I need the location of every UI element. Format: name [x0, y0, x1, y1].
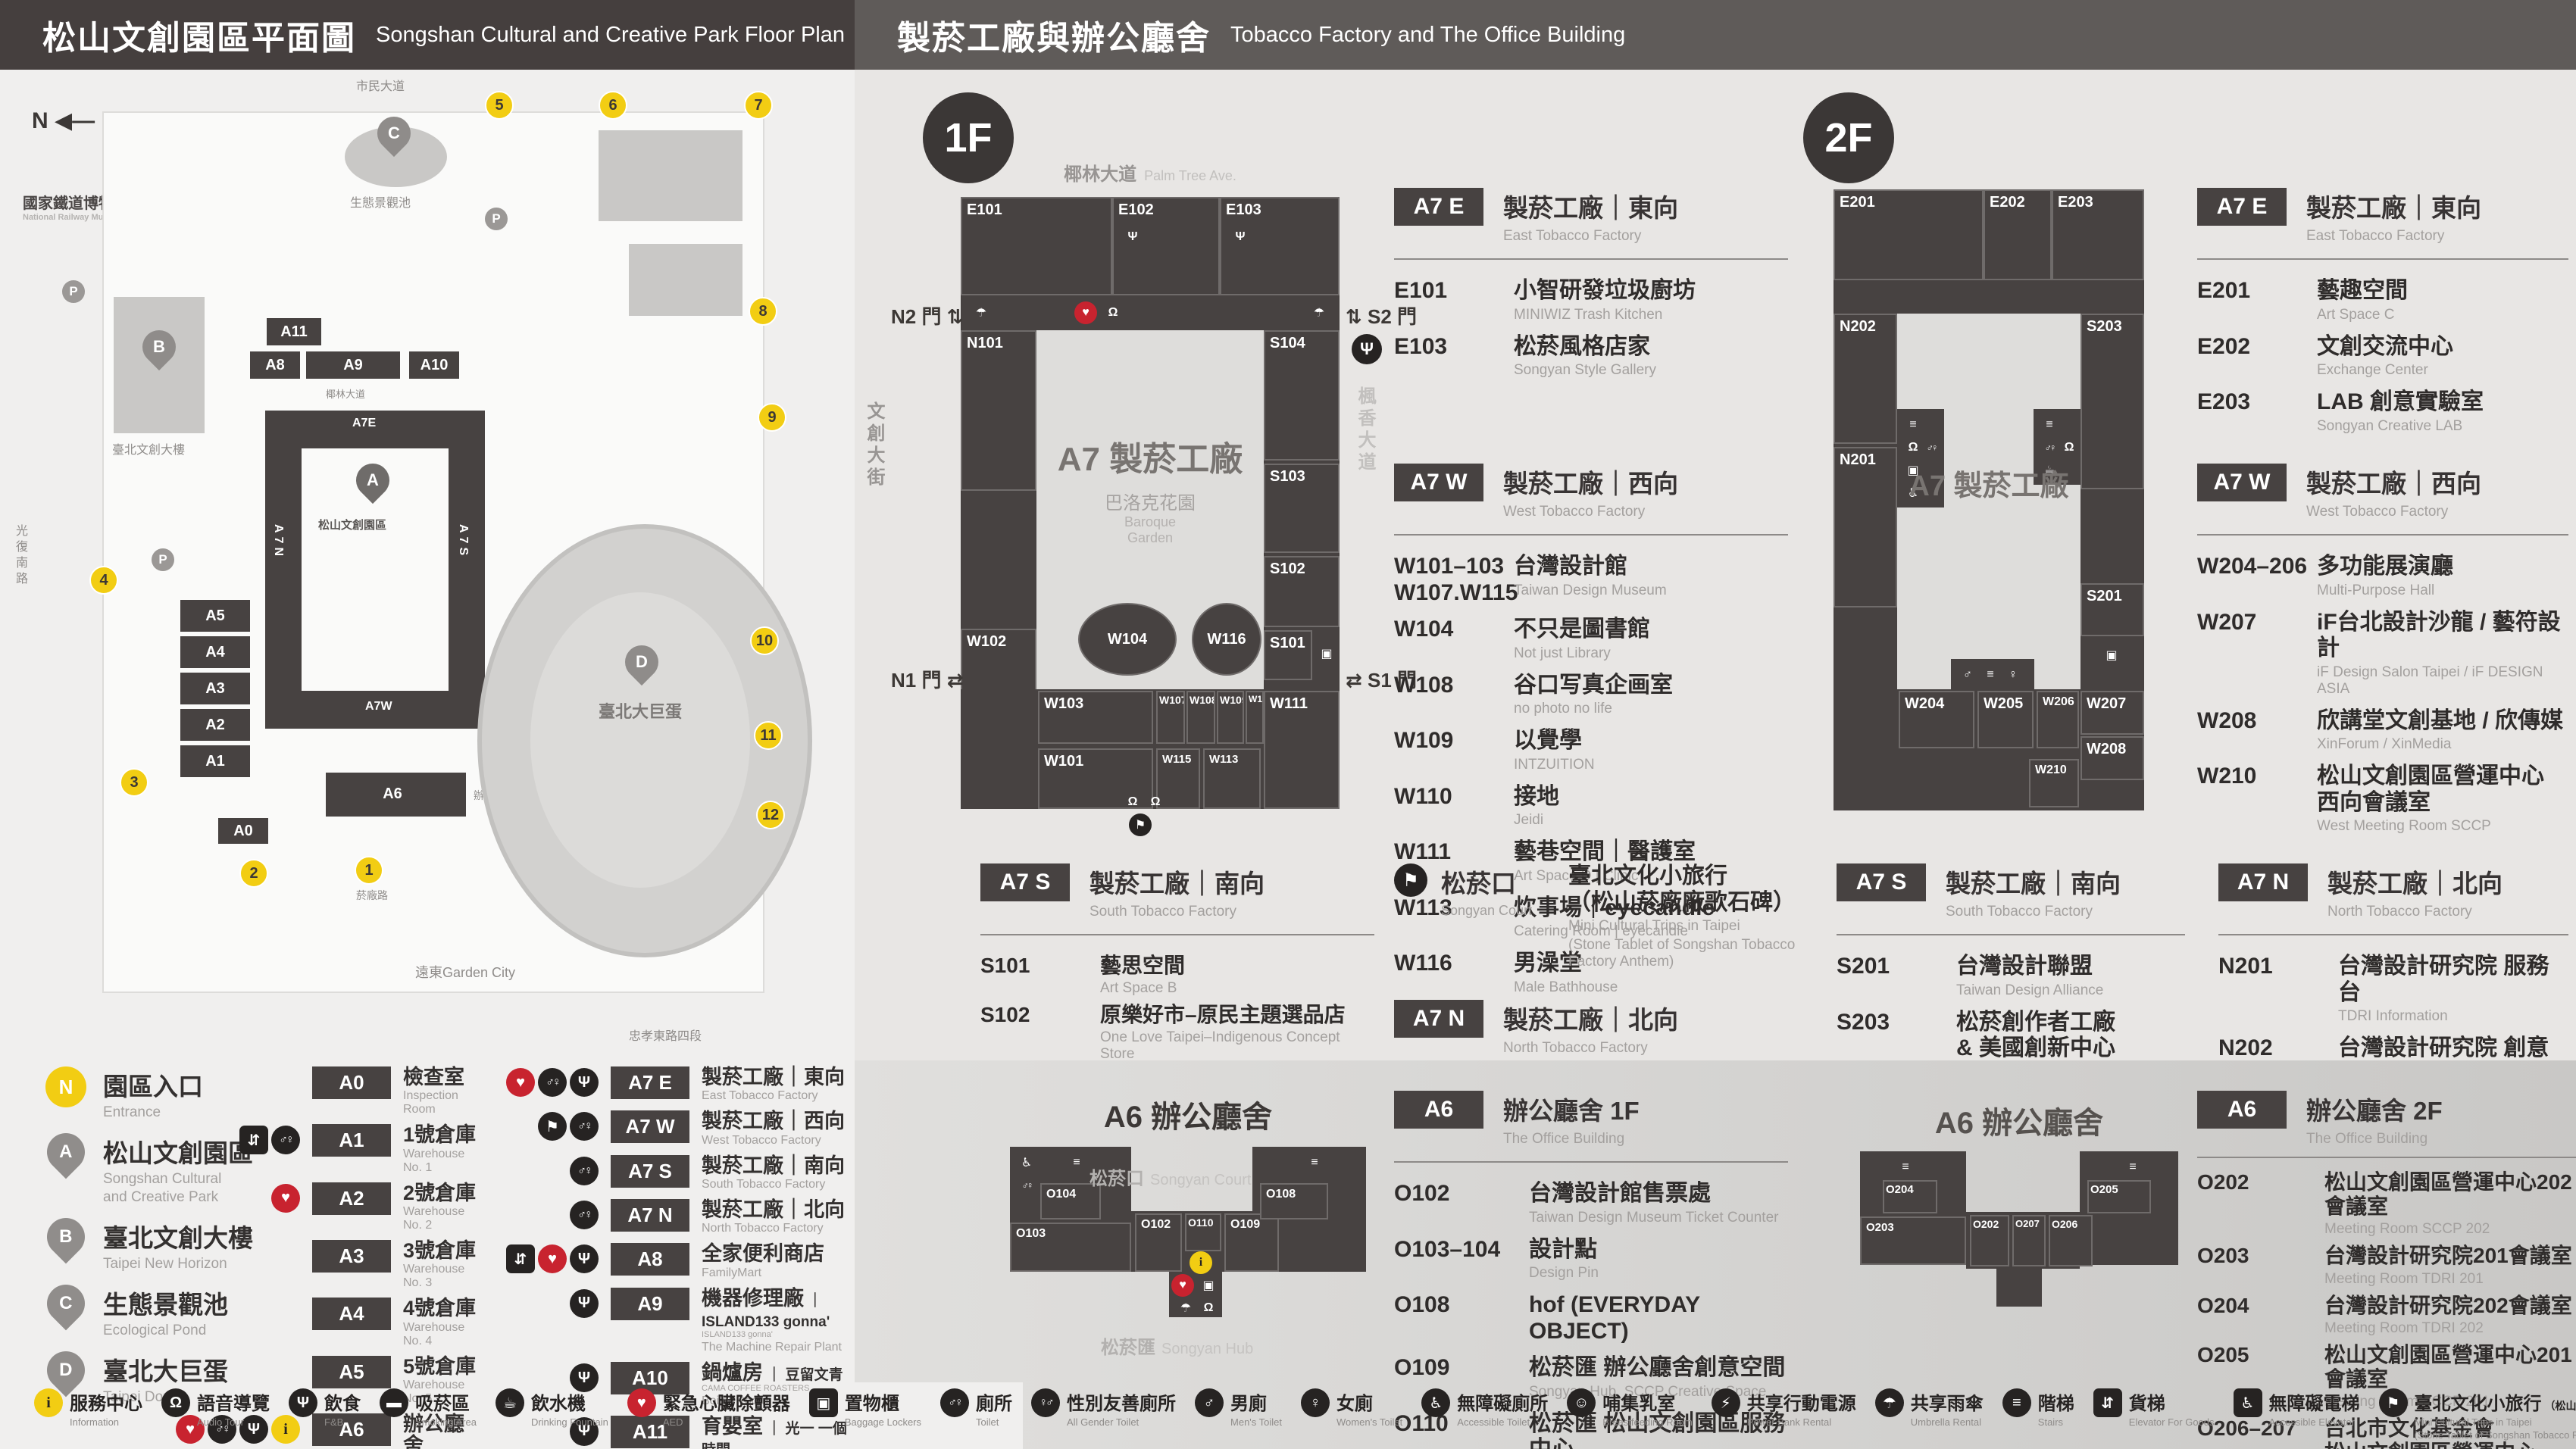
facility-item: 語音導覽 Audio Tour: [161, 1388, 270, 1428]
maple-ave-label: 楓香大道: [1352, 386, 1378, 474]
stairs-icon: [2002, 1388, 2031, 1417]
building-badge: A8: [611, 1243, 689, 1276]
map-a0: A0: [218, 818, 268, 844]
north-corridor: [961, 295, 1340, 330]
plan-2f: E201 E202 E203 N202 N201 S203 S201: [1811, 159, 2167, 833]
toilet-icon: [1920, 436, 1943, 459]
section-badge: A7 N: [1394, 1000, 1483, 1038]
building-badge: A7 N: [611, 1199, 689, 1232]
map-a8: A8: [250, 351, 300, 379]
room: N202: [1834, 314, 1897, 444]
section-badge: A7 N: [2218, 863, 2308, 901]
info-icon: [1190, 1251, 1212, 1274]
section-badge: A7 S: [1837, 863, 1926, 901]
dome-label: 臺北大巨蛋: [599, 698, 682, 723]
fnb-icon: [570, 1068, 599, 1097]
songyan-court-label: 松菸口Songyan Court: [1089, 1163, 1251, 1190]
gate-8: 8: [749, 297, 777, 326]
directory-item: W204–206 多功能展演廳Multi-Purpose Hall: [2197, 554, 2568, 599]
gate-6: 6: [599, 91, 627, 120]
legend-building-item: A7 W 製菸工廠｜西向 West Tobacco Factory: [485, 1110, 849, 1147]
accessible-elevator-icon: [2234, 1388, 2262, 1417]
audio-tour-icon: [1197, 1297, 1220, 1319]
toilet-icon: [570, 1112, 599, 1141]
right-title-en: Tobacco Factory and The Office Building: [1230, 23, 1625, 48]
room: O207: [2012, 1215, 2046, 1266]
room: S203: [2080, 314, 2144, 489]
room: S201: [2080, 583, 2144, 636]
directory-item: O204 台灣設計研究院202會議室Meeting Room TDRI 202: [2197, 1294, 2576, 1337]
nursing-icon: [1567, 1388, 1596, 1417]
section-songyan-court: 松菸口Songyan Court 臺北文化小旅行 （松山菸廠廠歌石碑） Mini…: [1394, 863, 1818, 970]
street-left-label: 光復南路: [11, 524, 29, 588]
directory-item: S101 藝思空間Art Space B: [980, 954, 1374, 997]
directory-item: W210 松山文創園區營運中心西向會議室West Meeting Room SC…: [2197, 764, 2568, 835]
directory-item: S102 原樂好市–原民主題選品店One Love Taipei–Indigen…: [980, 1003, 1374, 1063]
section-badge: A7 E: [2197, 188, 2287, 226]
locker-icon: [809, 1388, 838, 1417]
garden-city-label: 遠東Garden City: [415, 962, 515, 982]
left-title-en: Songshan Cultural and Creative Park Floo…: [376, 23, 845, 48]
men-icon: [1195, 1388, 1224, 1417]
audio-tour-icon: [2058, 436, 2080, 459]
room: O205: [2087, 1180, 2151, 1213]
umbrella-icon: [1875, 1388, 1904, 1417]
map-a11: A11: [267, 318, 321, 345]
toilet-icon: [271, 1126, 300, 1154]
a6-plan-title: A6 辦公廳舍: [1849, 1098, 2190, 1142]
stairs-icon: [1902, 414, 1924, 436]
place-pin-icon: B: [45, 1218, 86, 1262]
directory-item: O102 台灣設計館售票處Taiwan Design Museum Ticket…: [1394, 1181, 1788, 1226]
room: W210: [2029, 759, 2079, 807]
facility-item: 飲水機 Drinking Fountain: [496, 1388, 608, 1428]
locker-icon: [1197, 1274, 1220, 1297]
room: O203: [1860, 1216, 1966, 1265]
room: O109: [1224, 1213, 1279, 1272]
aed-icon: [1074, 301, 1097, 324]
locker-icon: [1315, 642, 1338, 665]
legend-building-item: A8 全家便利商店 FamilyMart: [485, 1243, 849, 1279]
room: W116: [1192, 603, 1261, 676]
facility-item: 廁所 Toilet: [940, 1388, 1012, 1428]
accessible-icon: [1421, 1388, 1450, 1417]
parking-icon: P: [62, 280, 85, 303]
facility-item: 緊急心臟除顫器 AED: [627, 1388, 790, 1428]
fountain-icon: [496, 1388, 524, 1417]
building-badge: A3: [312, 1240, 391, 1273]
map-legend: N 園區入口Entrance A 松山文創園區Songshan Cultural…: [0, 1053, 855, 1382]
building-badge: A4: [312, 1298, 391, 1330]
fnb-icon: [1121, 226, 1144, 248]
a7-center-label: A7 製菸工廠: [1897, 462, 2080, 504]
audio-tour-icon: [1102, 301, 1124, 324]
place-pin-icon: A: [45, 1133, 86, 1177]
fnb-icon: [570, 1289, 599, 1318]
place-pin-icon: C: [45, 1285, 86, 1329]
facility-item: 吸菸區 Smoking Area: [380, 1388, 477, 1428]
stairs-icon: [2038, 414, 2061, 436]
section-badge: A7 S: [980, 863, 1070, 901]
directory-item: O103–104 設計點Design Pin: [1394, 1237, 1788, 1282]
room: W206: [2037, 691, 2079, 748]
entrance-marker-icon: N: [45, 1066, 86, 1107]
umbrella-icon: [1174, 1297, 1197, 1319]
legend-building-item: A4 4號倉庫Warehouse No. 4: [227, 1298, 477, 1348]
room: O110: [1185, 1213, 1221, 1251]
plan-a6-1f: A6 辦公廳舍 O104 O103 O102 O110 O109 O108 松菸…: [999, 1079, 1377, 1382]
smoking-icon: [380, 1388, 408, 1417]
stairs-icon: [1303, 1151, 1326, 1174]
room: W110: [1246, 691, 1264, 744]
mens-toilet-icon: [1956, 664, 1979, 686]
legend-building-item: A9 機器修理廠ISLAND133 gonna' ISLAND133 gonna…: [485, 1288, 849, 1355]
directory-item: O202 松山文創園區營運中心202會議室Meeting Room SCCP 2…: [2197, 1170, 2576, 1238]
room: W108: [1186, 691, 1215, 744]
directory-item: O108 hof (EVERYDAY OBJECT): [1394, 1292, 1788, 1344]
section-a7e-1f: A7 E 製菸工廠｜東向East Tobacco Factory E101 小智…: [1394, 188, 1788, 389]
room: E202: [1984, 189, 2052, 280]
facility-item: 階梯 Stairs: [2002, 1388, 2074, 1428]
street-top-label: 市民大道: [356, 76, 405, 94]
facility-item: 貨梯 Elevator For Goods: [2093, 1388, 2215, 1428]
gate-12: 12: [756, 801, 785, 829]
room: W207: [2080, 691, 2144, 735]
legend-building-item: A1 1號倉庫Warehouse No. 1: [227, 1124, 477, 1174]
room: E201: [1834, 189, 1984, 280]
room: W109: [1217, 691, 1244, 744]
plan-a6-2f: A6 辦公廳舍 O204 O203 O202 O207 O206 O205: [1849, 1091, 2190, 1363]
aed-icon: [538, 1244, 567, 1273]
legend-building-item: A7 E 製菸工廠｜東向 East Tobacco Factory: [485, 1066, 849, 1103]
yanchang-rd-label: 菸廠路: [356, 888, 388, 903]
section-a7e-2f: A7 E 製菸工廠｜東向East Tobacco Factory E201 藝趣…: [2197, 188, 2568, 445]
room: S104: [1264, 330, 1340, 461]
palm-ave-street: 椰林大道Palm Tree Ave.: [930, 159, 1370, 186]
gate-10: 10: [750, 626, 779, 655]
floor-plan-page: 松山文創園區平面圖 Songshan Cultural and Creative…: [0, 0, 2576, 1449]
room: W205: [1977, 691, 2034, 748]
room: N101: [961, 330, 1036, 491]
facility-item: 飲食 F&B: [289, 1388, 361, 1428]
directory-item: E103 松菸風格店家Songyan Style Gallery: [1394, 334, 1788, 379]
stairs-icon: [1979, 664, 2002, 686]
map-a5: A5: [180, 600, 250, 632]
room: O202: [1970, 1215, 2009, 1266]
parking-icon: P: [152, 548, 174, 571]
facility-item: 置物櫃 Baggage Lockers: [809, 1388, 921, 1428]
room: W113: [1203, 748, 1261, 809]
pond-label: 生態景觀池: [350, 192, 411, 211]
directory-item: E101 小智研發垃圾廚坊MINIWIZ Trash Kitchen: [1394, 278, 1788, 323]
map-a3: A3: [180, 673, 250, 704]
directory-item: W101–103W107.W115 台灣設計館Taiwan Design Mus…: [1394, 554, 1788, 606]
building-badge: A5: [312, 1356, 391, 1388]
umbrella-icon: [1308, 301, 1330, 324]
plan-1f: 椰林大道Palm Tree Ave. E101 E102 E103 N2 門 ⇅…: [930, 159, 1370, 833]
room: O204: [1883, 1180, 1937, 1213]
section-a7w-2f: A7 W 製菸工廠｜西向West Tobacco Factory W204–20…: [2197, 464, 2568, 845]
building-shape: [629, 244, 742, 316]
left-title-zh: 松山文創園區平面圖: [42, 11, 356, 59]
aed-icon: [1171, 1274, 1194, 1297]
directory-item: E203 LAB 創意實驗室Songyan Creative LAB: [2197, 389, 2568, 435]
directory-item: E201 藝趣空間Art Space C: [2197, 278, 2568, 323]
directory-item: W104 不只是圖書館Not just Library: [1394, 617, 1788, 662]
gate-3: 3: [120, 768, 148, 797]
room: N201: [1834, 447, 1897, 607]
toilet-icon: [570, 1201, 599, 1229]
room: W204: [1899, 691, 1974, 748]
room: S101: [1264, 630, 1312, 680]
gate-4: 4: [89, 566, 118, 595]
map-a7n: A7N: [271, 524, 285, 560]
map-a1: A1: [180, 745, 250, 777]
facility-item: 無障礙電梯 Accessible Elevator: [2234, 1388, 2360, 1428]
facility-item: 共享行動電源 Power Bank Rental: [1712, 1388, 1856, 1428]
building-badge: A7 E: [611, 1066, 689, 1099]
room: W107: [1156, 691, 1185, 744]
toilet-icon: [940, 1388, 969, 1417]
directory-item: W110 接地Jeidi: [1394, 784, 1788, 829]
fnb-icon: [289, 1388, 317, 1417]
stairs-icon: [2121, 1156, 2144, 1179]
facility-item: 哺集乳室 Breastfeeding Room: [1567, 1388, 1693, 1428]
info-icon: [34, 1388, 63, 1417]
legend-building-item: A3 3號倉庫Warehouse No. 3: [227, 1240, 477, 1290]
legend-building-item: A2 2號倉庫Warehouse No. 2: [227, 1182, 477, 1232]
legend-building-item: A7 S 製菸工廠｜南向 South Tobacco Factory: [485, 1155, 849, 1191]
audio-tour-icon: [1121, 791, 1144, 814]
park-name-label: 松山文創園區: [318, 517, 386, 532]
toilet-icon: [570, 1157, 599, 1185]
building-badge: A7 W: [611, 1110, 689, 1143]
palm-ave-label: 椰林大道: [326, 386, 365, 401]
powerbank-icon: [1712, 1388, 1740, 1417]
songyan-hub-label: 松菸匯Songyan Hub: [1101, 1332, 1253, 1359]
north-corridor: [1834, 280, 2144, 314]
audio-icon: [161, 1388, 190, 1417]
building-badge: A2: [312, 1182, 391, 1215]
mini-trips-icon: [1129, 814, 1152, 836]
stairs-icon: [1065, 1151, 1088, 1174]
aed-icon: [506, 1068, 535, 1097]
room: O102: [1135, 1213, 1182, 1272]
room: W103: [1038, 691, 1153, 744]
facility-item: 服務中心 Information: [34, 1388, 142, 1428]
directory-item: O203 台灣設計研究院201會議室Meeting Room TDRI 201: [2197, 1244, 2576, 1287]
womens-toilet-icon: [2002, 664, 2024, 686]
building-badge: A7 S: [611, 1155, 689, 1188]
goods-elevator-icon: [239, 1126, 268, 1154]
facility-item: 臺北文化小旅行（松山菸廠廠歌石碑） Mini Cultural Trips in…: [2379, 1388, 2576, 1441]
aed-icon: [271, 1184, 300, 1213]
a6-stem: [1996, 1269, 2042, 1307]
women-icon: [1301, 1388, 1330, 1417]
facility-legend-strip: 服務中心 Information 語音導覽 Audio Tour 飲食 F&B …: [34, 1388, 2557, 1441]
map-a9: A9: [306, 351, 400, 379]
audio-tour-icon: [1144, 791, 1167, 814]
map-a7s: A7S: [456, 524, 470, 559]
room: S102: [1264, 556, 1340, 627]
legend-building-item: A0 檢查室Inspection Room: [227, 1066, 477, 1116]
a6-plan-title: A6 辦公廳舍: [999, 1092, 1377, 1136]
map-a6: A6: [370, 780, 415, 807]
gate-n1-label: N1 門 ⇄: [891, 665, 963, 693]
map-a2: A2: [180, 709, 250, 741]
tobacco-factory-panel: 1F 椰林大道Palm Tree Ave. E101 E102 E103 N2 …: [855, 70, 2576, 1060]
gate-n2-label: N2 門 ⇅: [891, 301, 963, 329]
compass-n: N ◀—: [32, 108, 95, 134]
umbrella-icon: [970, 301, 993, 324]
parking-icon: P: [485, 208, 508, 230]
room: E101: [961, 197, 1112, 295]
room: S103: [1264, 464, 1340, 553]
facility-item: 女廁 Women's Toilet: [1301, 1388, 1402, 1428]
directory-item: W108 谷口写真企画室no photo no life: [1394, 673, 1788, 718]
facility-item: 男廁 Men's Toilet: [1195, 1388, 1282, 1428]
legend-building-item: A7 N 製菸工廠｜北向 North Tobacco Factory: [485, 1199, 849, 1235]
directory-item: S201 台灣設計聯盟Taiwan Design Alliance: [1837, 954, 2185, 999]
locker-icon: [2100, 644, 2123, 667]
room: W111: [1264, 691, 1340, 809]
goods-elevator-icon: [506, 1244, 535, 1273]
room: O103: [1010, 1223, 1131, 1272]
a7-center-label: A7 製菸工廠 巴洛克花園 Baroque Garden: [1036, 432, 1264, 546]
building-badge: A1: [312, 1124, 391, 1157]
facility-item: 性別友善廁所 All Gender Toilet: [1031, 1388, 1176, 1428]
directory-item: W109 以覺學INTZUITION: [1394, 728, 1788, 773]
right-title-zh: 製菸工廠與辦公廳舍: [897, 11, 1211, 59]
toilet-icon: [1015, 1174, 1038, 1197]
building-shape: [599, 130, 742, 221]
stairs-icon: [1894, 1156, 1917, 1179]
gate-1: 1: [355, 856, 383, 885]
b-label: 臺北文創大樓: [112, 439, 185, 457]
map-a7e: A7E: [352, 417, 376, 430]
park-map: N ◀— 國家鐵道博物館National Railway Museum 市民大道…: [0, 70, 855, 1053]
gate-5: 5: [485, 91, 514, 120]
room: W104: [1078, 603, 1177, 676]
section-badge: A7 E: [1394, 188, 1483, 226]
directory-item: N201 台灣設計研究院 服務台TDRI Information: [2218, 954, 2568, 1025]
gate-9: 9: [758, 403, 786, 432]
section-badge: A6: [1394, 1091, 1483, 1129]
dome-inner: [530, 592, 750, 888]
allgender-icon: [1031, 1388, 1060, 1417]
building-badge: A0: [312, 1066, 391, 1099]
room: E203: [2052, 189, 2144, 280]
room: O108: [1260, 1183, 1328, 1219]
right-header: 製菸工廠與辦公廳舍 Tobacco Factory and The Office…: [855, 0, 2576, 70]
room: W208: [2080, 736, 2144, 780]
trips-icon: [2379, 1388, 2408, 1417]
directory-item: W208 欣講堂文創基地 / 欣傳媒XinForum / XinMedia: [2197, 708, 2568, 754]
section-badge: A7 W: [2197, 464, 2287, 501]
fnb-icon: [1229, 226, 1252, 248]
street-bottom-label: 忠孝東路四段: [629, 1026, 702, 1044]
court-item: 臺北文化小旅行 （松山菸廠廠歌石碑） Mini Cultural Trips i…: [1568, 863, 1818, 970]
map-a7w: A7W: [365, 700, 392, 714]
section-badge: A6: [2197, 1091, 2287, 1129]
fnb-icon: [570, 1244, 599, 1273]
directory-item: E202 文創交流中心Exchange Center: [2197, 334, 2568, 379]
map-a10: A10: [409, 351, 459, 379]
aed-icon: [627, 1388, 656, 1417]
gate-2: 2: [239, 859, 268, 888]
accessible-icon: [1015, 1151, 1038, 1174]
section-badge: A7 W: [1394, 464, 1483, 501]
goods-elevator-icon: [2093, 1388, 2122, 1417]
map-a4: A4: [180, 636, 250, 668]
directory-item: W207 iF台北設計沙龍 / 藝符設計iF Design Salon Taip…: [2197, 610, 2568, 698]
left-header: 松山文創園區平面圖 Songshan Cultural and Creative…: [0, 0, 855, 70]
mini-trips-icon: [1394, 863, 1427, 897]
gate-11: 11: [754, 721, 783, 750]
facility-item: 共享雨傘 Umbrella Rental: [1875, 1388, 1984, 1428]
fnb-icon: [1352, 334, 1382, 364]
facility-item: 無障礙廁所 Accessible Toilet: [1421, 1388, 1548, 1428]
room: O206: [2049, 1215, 2093, 1266]
building-badge: A9: [611, 1288, 689, 1320]
toilet-icon: [538, 1068, 567, 1097]
trips-icon: [538, 1112, 567, 1141]
cultural-blvd-label: 文創大街: [861, 401, 887, 489]
gate-7: 7: [744, 91, 773, 120]
